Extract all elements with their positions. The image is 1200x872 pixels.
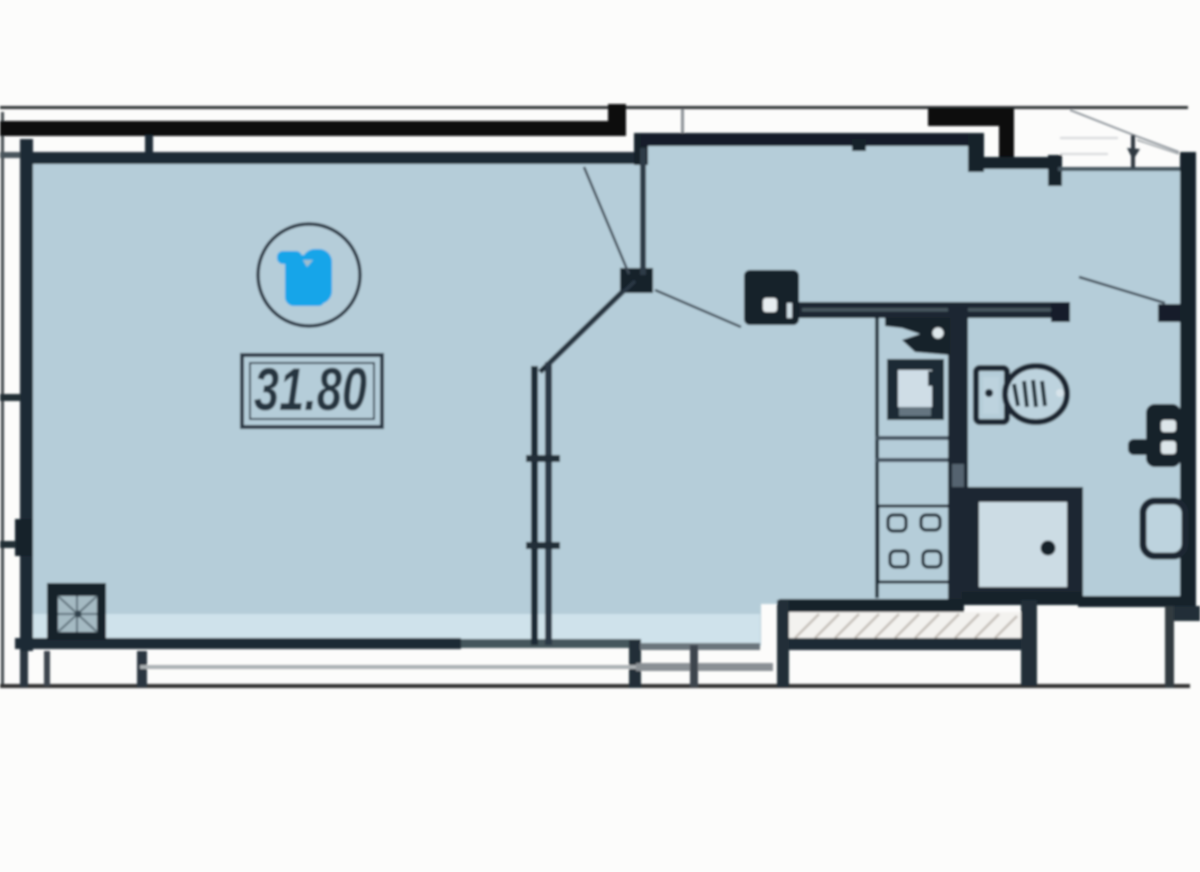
svg-text:31.80: 31.80 [254, 356, 367, 423]
